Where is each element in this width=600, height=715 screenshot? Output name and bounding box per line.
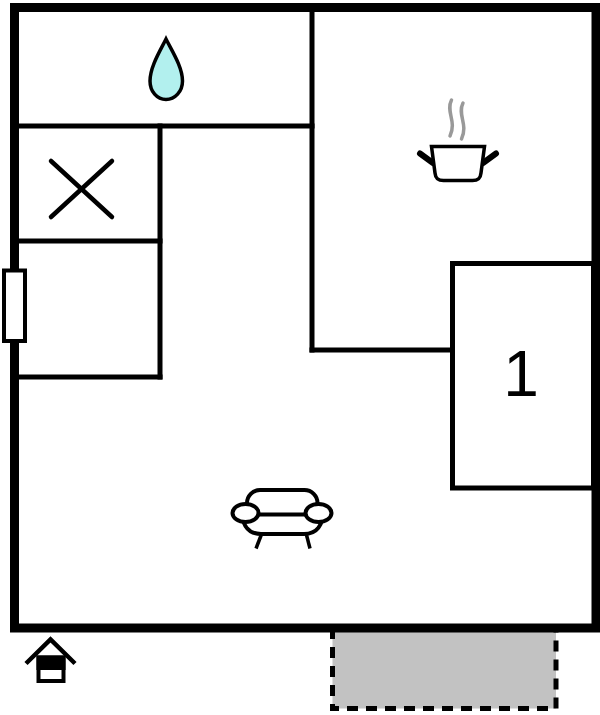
steam-line-left — [450, 100, 453, 136]
x-mark-icon — [51, 161, 112, 217]
terrace-area — [333, 628, 557, 709]
floor-plan-svg: 1 — [0, 0, 600, 715]
steam-line-right — [461, 103, 464, 139]
sofa-icon — [233, 490, 332, 549]
house-icon — [26, 640, 75, 682]
bedroom-1: 1 — [453, 264, 594, 489]
house-body-top-fill — [37, 656, 66, 671]
window-marker — [4, 271, 25, 342]
floor-plan: 1 — [0, 0, 600, 715]
water-drop-icon — [150, 39, 183, 100]
sofa-armrest-left — [233, 504, 259, 522]
bedroom-1-label: 1 — [503, 338, 539, 410]
terrace — [333, 628, 557, 709]
cooking-pot-icon — [420, 100, 496, 181]
pot-body — [432, 147, 485, 181]
sofa-armrest-right — [306, 504, 332, 522]
